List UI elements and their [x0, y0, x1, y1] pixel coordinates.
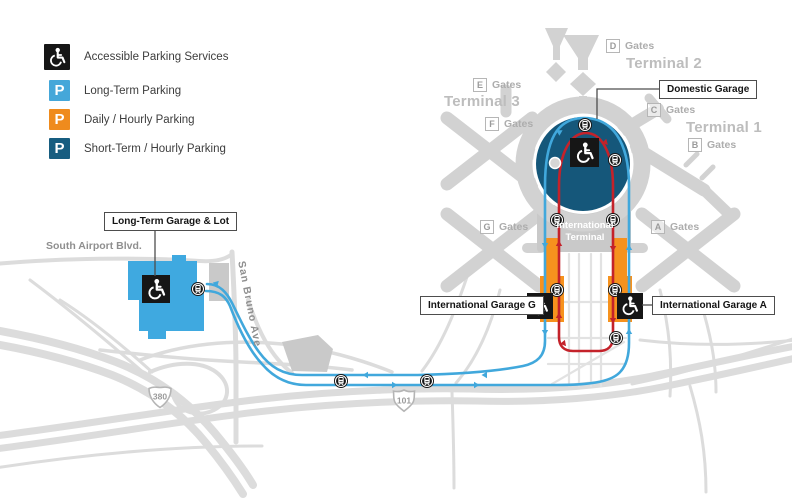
- legend-item-accessible: Accessible Parking Services: [44, 44, 228, 70]
- gates-d-label: D Gates: [606, 39, 654, 53]
- svg-text:Terminal: Terminal: [566, 232, 605, 243]
- international-garage-a-callout: International Garage A: [652, 296, 775, 315]
- gate-word: Gates: [625, 40, 654, 52]
- station-icon: [609, 331, 623, 345]
- station-icon: [578, 118, 592, 132]
- legend-label: Accessible Parking Services: [84, 51, 228, 63]
- us101-shield: 101: [394, 390, 415, 411]
- legend: Accessible Parking Services P Long-Term …: [44, 44, 228, 167]
- accessible-parking-icon: [142, 275, 170, 303]
- legend-item-short-term: P Short-Term / Hourly Parking: [44, 138, 228, 159]
- highway-network: [0, 252, 792, 494]
- domestic-garage-callout: Domestic Garage: [659, 80, 757, 99]
- legend-item-daily-hourly: P Daily / Hourly Parking: [44, 109, 228, 130]
- p-icon: P: [49, 80, 70, 101]
- buildings: [209, 263, 333, 372]
- international-garage-g-callout: International Garage G: [420, 296, 544, 315]
- gate-word: Gates: [670, 221, 699, 233]
- station-icon: [191, 282, 205, 296]
- gates-c-label: C Gates: [647, 103, 695, 117]
- terminal-1-label: Terminal 1: [686, 119, 762, 136]
- gate-letter-box: B: [688, 138, 702, 152]
- svg-text:101: 101: [397, 396, 411, 406]
- south-airport-blvd-label: South Airport Blvd.: [46, 240, 142, 252]
- gate-letter-box: F: [485, 117, 499, 131]
- station-icon: [608, 153, 622, 167]
- gate-letter-box: A: [651, 220, 665, 234]
- gates-e-label: E Gates: [473, 78, 521, 92]
- station-icon: [334, 374, 348, 388]
- station-icon: [420, 374, 434, 388]
- gray-station-dot: [550, 158, 561, 169]
- legend-label: Short-Term / Hourly Parking: [84, 143, 226, 155]
- p-icon: P: [49, 109, 70, 130]
- airport-parking-map: International Terminal 380 101 Accessibl…: [0, 0, 792, 500]
- gates-g-label: G Gates: [480, 220, 528, 234]
- legend-label: Daily / Hourly Parking: [84, 114, 195, 126]
- legend-label: Long-Term Parking: [84, 85, 181, 97]
- gate-letter-box: E: [473, 78, 487, 92]
- legend-item-long-term: P Long-Term Parking: [44, 80, 228, 101]
- gates-b-label: B Gates: [688, 138, 736, 152]
- accessible-parking-icon: [617, 293, 643, 319]
- terminal-3-label: Terminal 3: [444, 93, 520, 110]
- gate-word: Gates: [499, 221, 528, 233]
- gate-word: Gates: [504, 118, 533, 130]
- accessible-icon: [44, 44, 70, 70]
- gates-a-label: A Gates: [651, 220, 699, 234]
- terminal-2-label: Terminal 2: [626, 55, 702, 72]
- gate-letter-box: G: [480, 220, 494, 234]
- gate-letter-box: C: [647, 103, 661, 117]
- svg-text:380: 380: [153, 392, 167, 402]
- gate-word: Gates: [707, 139, 736, 151]
- gates-f-label: F Gates: [485, 117, 533, 131]
- gate-word: Gates: [492, 79, 521, 91]
- svg-text:International: International: [556, 220, 613, 231]
- p-icon: P: [49, 138, 70, 159]
- gate-letter-box: D: [606, 39, 620, 53]
- accessible-parking-icon: [570, 138, 599, 167]
- long-term-garage-callout: Long-Term Garage & Lot: [104, 212, 237, 231]
- gate-word: Gates: [666, 104, 695, 116]
